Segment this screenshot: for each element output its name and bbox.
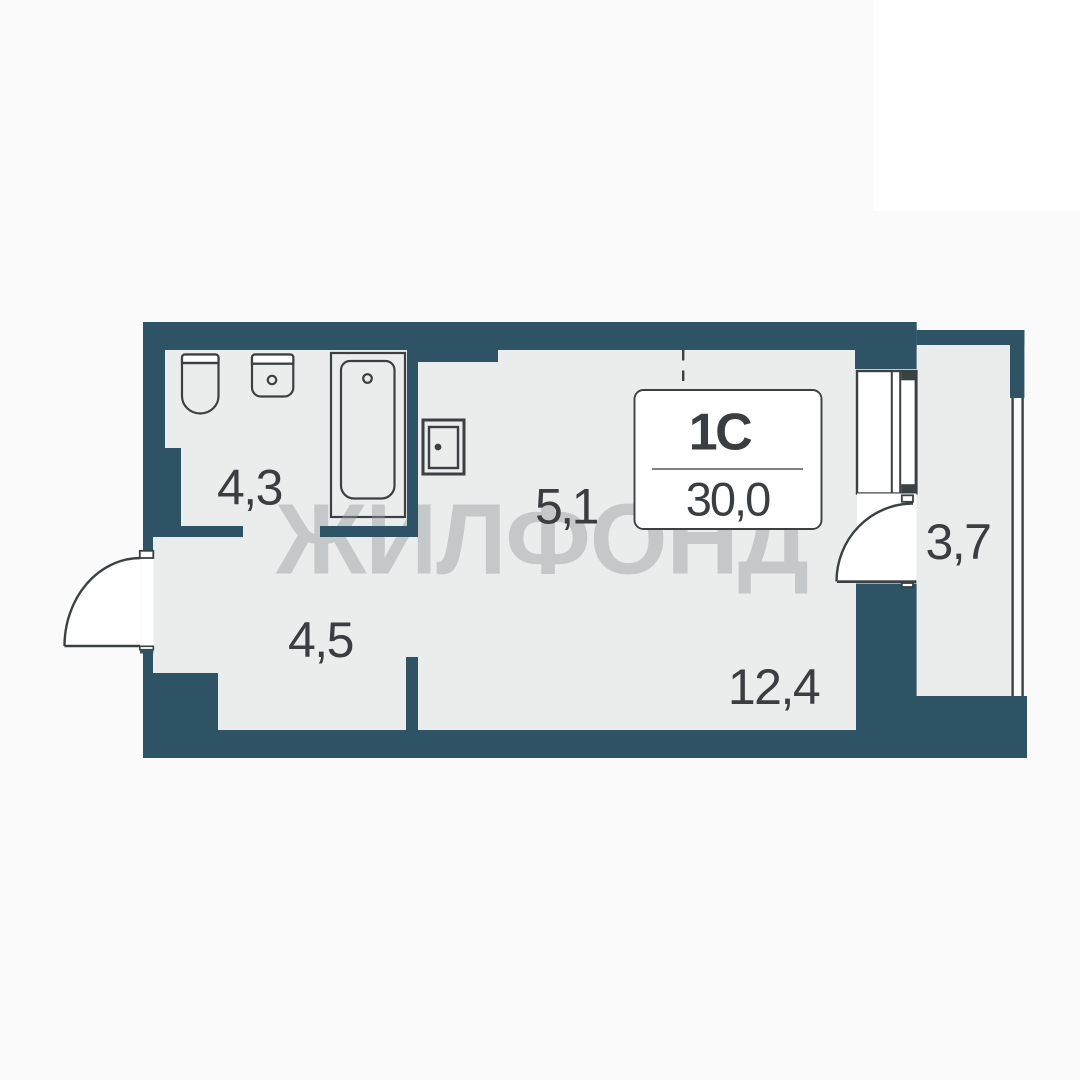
svg-text:5,1: 5,1 [535, 479, 598, 535]
svg-text:12,4: 12,4 [728, 659, 820, 715]
svg-text:30,0: 30,0 [686, 473, 770, 526]
svg-text:3,7: 3,7 [925, 514, 990, 570]
svg-text:1С: 1С [689, 404, 752, 462]
svg-text:4,5: 4,5 [288, 612, 353, 668]
svg-text:4,3: 4,3 [217, 460, 282, 516]
